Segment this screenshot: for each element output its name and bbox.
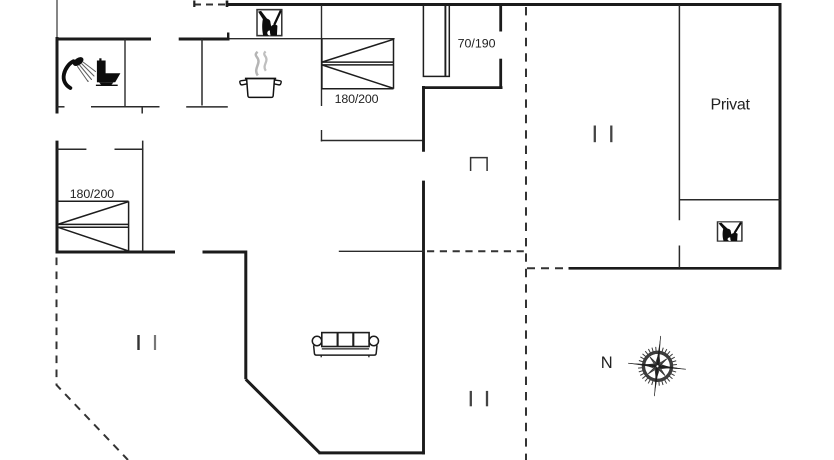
- svg-text:Privat: Privat: [711, 97, 751, 114]
- svg-text:70/190: 70/190: [458, 36, 496, 50]
- svg-text:180/200: 180/200: [70, 187, 115, 201]
- svg-text:180/200: 180/200: [335, 92, 379, 106]
- svg-text:N: N: [601, 354, 613, 372]
